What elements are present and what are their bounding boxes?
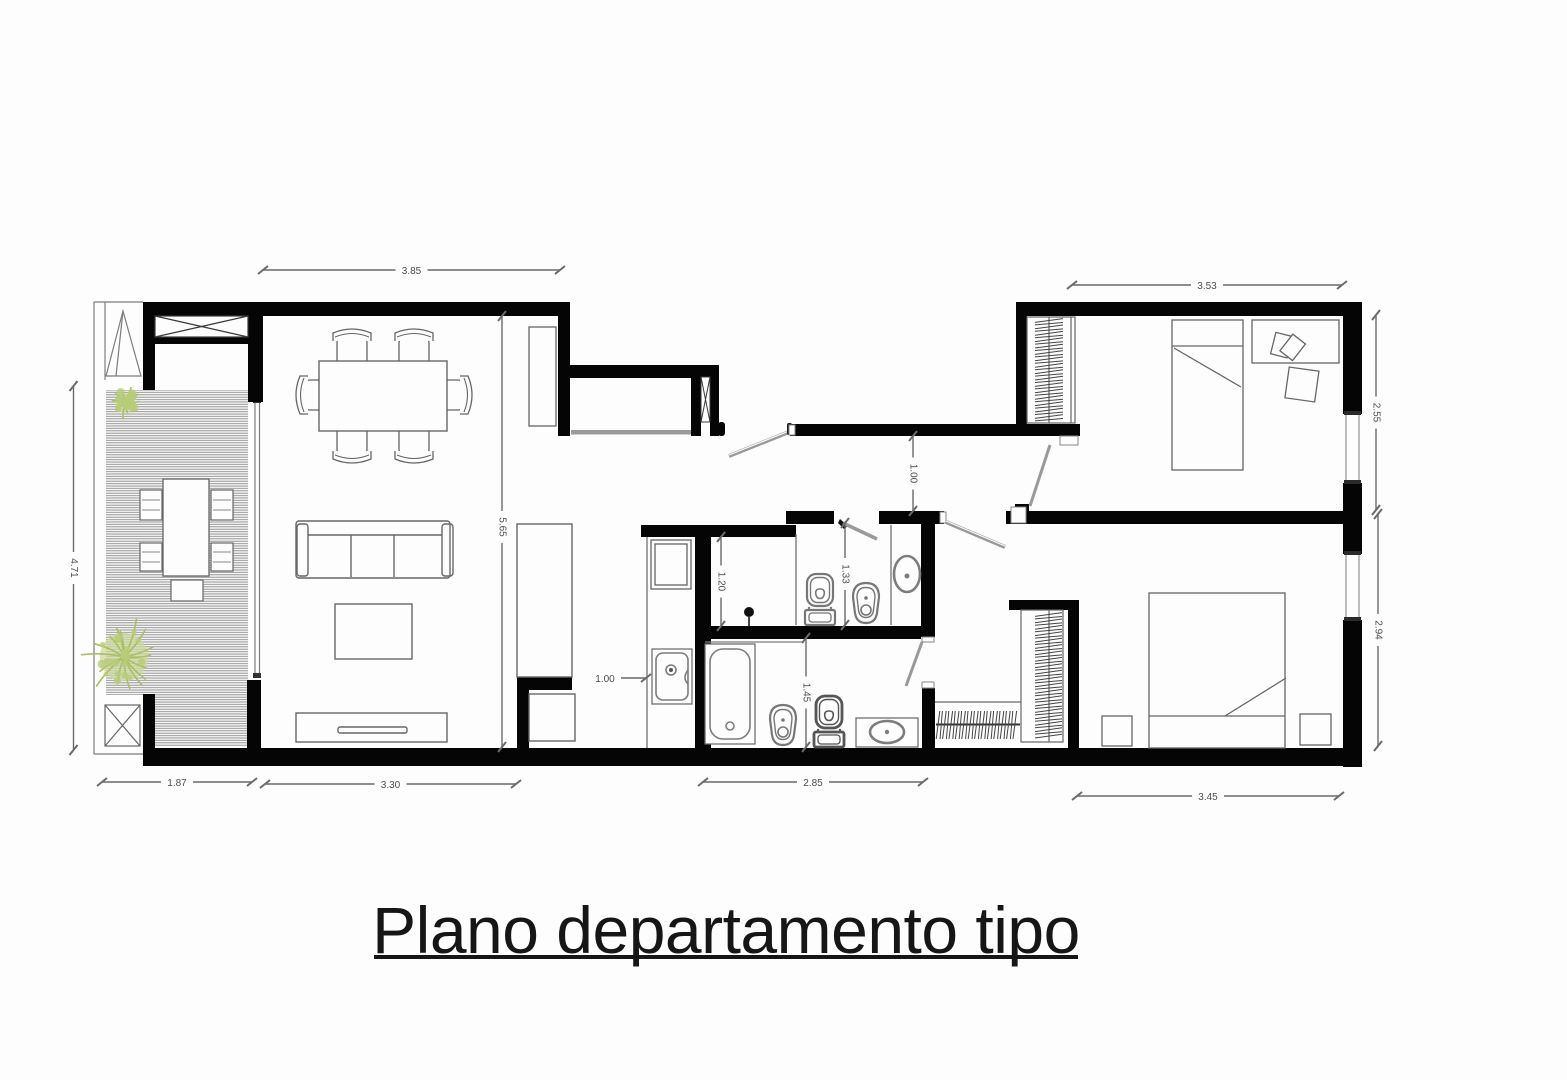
svg-text:2.94: 2.94 xyxy=(1373,620,1384,640)
svg-text:5.65: 5.65 xyxy=(497,517,508,537)
svg-text:2.55: 2.55 xyxy=(1371,403,1382,423)
svg-text:3.45: 3.45 xyxy=(1198,792,1218,803)
svg-text:1.33: 1.33 xyxy=(840,564,851,584)
svg-text:3.30: 3.30 xyxy=(381,780,401,791)
svg-text:4.71: 4.71 xyxy=(68,558,79,578)
svg-text:3.53: 3.53 xyxy=(1197,281,1217,292)
svg-text:1.00: 1.00 xyxy=(908,464,919,484)
svg-text:1.45: 1.45 xyxy=(801,683,812,703)
svg-text:1.00: 1.00 xyxy=(595,674,615,685)
svg-text:1.87: 1.87 xyxy=(167,778,187,789)
svg-text:3.85: 3.85 xyxy=(402,266,422,277)
svg-text:2.85: 2.85 xyxy=(803,778,823,789)
svg-text:1.20: 1.20 xyxy=(716,572,727,592)
